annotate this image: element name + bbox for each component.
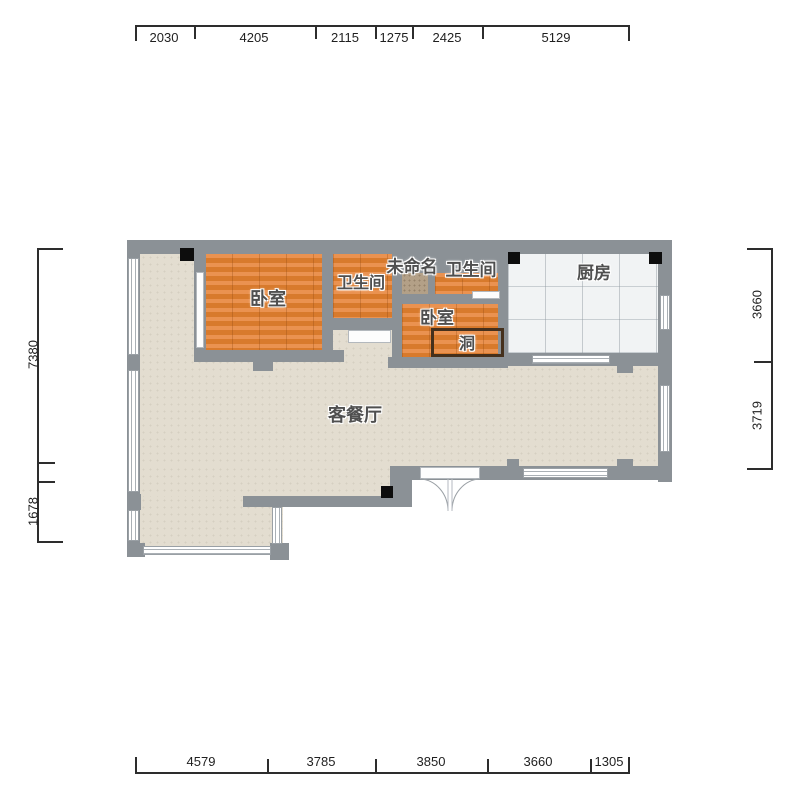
dim-bottom-value: 1305	[569, 754, 649, 769]
window-bay-bottom	[143, 546, 271, 555]
dim-bottom-value: 4579	[161, 754, 241, 769]
window-right-living	[660, 385, 670, 452]
label-bathroom-1: 卫生间	[337, 269, 385, 293]
marker-kitchen-left	[508, 252, 520, 264]
label-bedroom-small: 卧室	[420, 304, 454, 329]
dim-right-cap	[747, 248, 773, 250]
marker-kitchen-right	[649, 252, 662, 264]
dim-top-value: 5129	[516, 30, 596, 45]
dim-left-value: 7380	[26, 315, 41, 395]
dim-bottom-line	[135, 772, 630, 774]
wall-stub-kitchen	[617, 366, 633, 373]
marker-entry	[381, 486, 393, 498]
floor-plan: 卧室 卫生间 未命名 卫生间 厨房 卧室 洞 客餐厅 2030 4205 211…	[0, 0, 800, 800]
dim-right-tick	[754, 361, 773, 363]
dim-top-value: 4205	[214, 30, 294, 45]
window-kitchen-bottom	[532, 355, 610, 364]
wall-corner-bay	[270, 543, 289, 560]
wall-left-block-low	[127, 494, 141, 510]
dim-right-value: 3719	[750, 376, 765, 456]
door-bedroom-main	[196, 272, 204, 348]
dim-left-value: 1678	[26, 472, 41, 552]
entry-door-swing-icon	[410, 478, 490, 520]
dim-right-cap	[747, 468, 773, 470]
label-unnamed: 未命名	[387, 253, 438, 278]
dim-top-tick	[628, 25, 630, 41]
dim-left-tick	[37, 462, 55, 464]
wall-pillar-1	[507, 459, 519, 467]
window-left-1	[128, 258, 139, 355]
dim-right-line	[771, 248, 773, 470]
wall-bay-top	[243, 496, 398, 507]
window-left-2	[128, 370, 139, 492]
dim-bottom-tick	[267, 759, 269, 774]
label-bedroom-main: 卧室	[250, 285, 286, 311]
dim-bottom-value: 3850	[391, 754, 471, 769]
wall-left-block-mid	[127, 358, 140, 370]
dim-top-value: 2030	[124, 30, 204, 45]
window-right-kitchen	[660, 295, 670, 330]
wall-bedroom-bathroom-divider	[322, 254, 333, 362]
label-bathroom-2: 卫生间	[446, 256, 497, 281]
label-hole: 洞	[459, 330, 475, 354]
dim-bottom-tick	[375, 759, 377, 774]
label-kitchen: 厨房	[577, 259, 611, 284]
wall-stub-bedroom	[253, 362, 273, 371]
window-left-3	[128, 510, 139, 541]
window-bottom-main	[523, 468, 608, 478]
living-room-floor-lower	[140, 466, 390, 497]
marker-top-left	[180, 248, 194, 261]
dim-bottom-value: 3660	[498, 754, 578, 769]
window-bay-right	[272, 507, 282, 544]
dim-bottom-tick	[487, 759, 489, 774]
dim-left-cap	[37, 248, 63, 250]
wall-pillar-2	[617, 459, 633, 467]
door-bathroom-2	[472, 291, 500, 299]
dim-right-value: 3660	[750, 265, 765, 345]
label-living-dining: 客餐厅	[328, 401, 382, 427]
door-bathroom-1	[348, 330, 391, 343]
dim-left-cap	[37, 541, 63, 543]
dim-bottom-tick	[135, 757, 137, 774]
dim-bottom-value: 3785	[281, 754, 361, 769]
dim-top-value: 2425	[407, 30, 487, 45]
dim-top-line	[135, 25, 630, 27]
wall-bedroom-small-bottom	[388, 357, 508, 368]
